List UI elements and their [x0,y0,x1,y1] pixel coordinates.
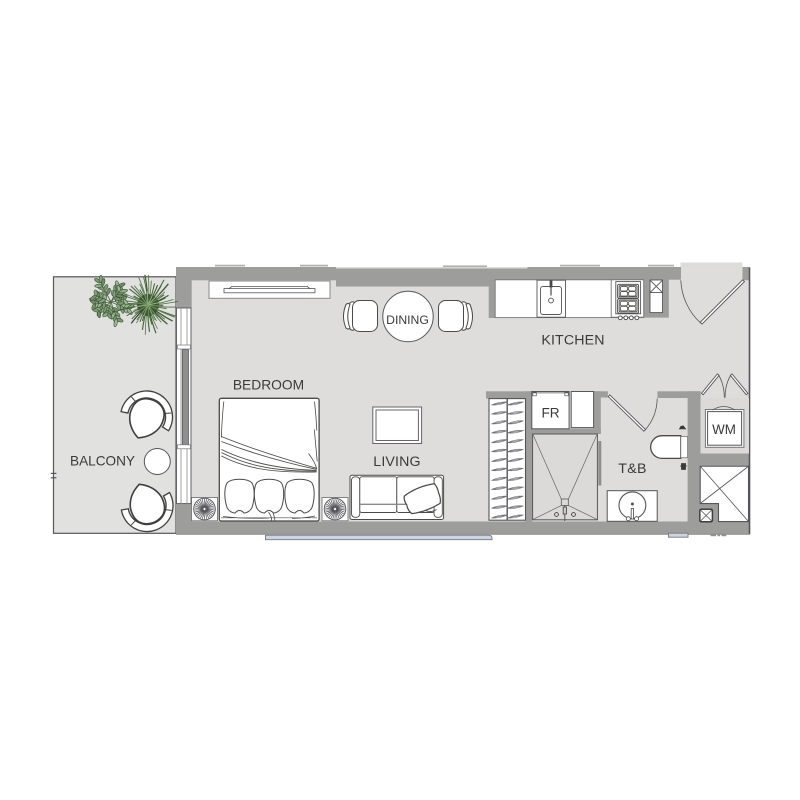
svg-text:FR: FR [541,406,559,421]
svg-text:T&B: T&B [618,461,647,477]
svg-text:KITCHEN: KITCHEN [541,333,604,349]
svg-text:BEDROOM: BEDROOM [233,378,304,393]
svg-text:BALCONY: BALCONY [70,454,135,469]
svg-text:WM: WM [712,422,736,437]
svg-text:LIVING: LIVING [373,454,420,470]
svg-text:DINING: DINING [386,313,429,327]
